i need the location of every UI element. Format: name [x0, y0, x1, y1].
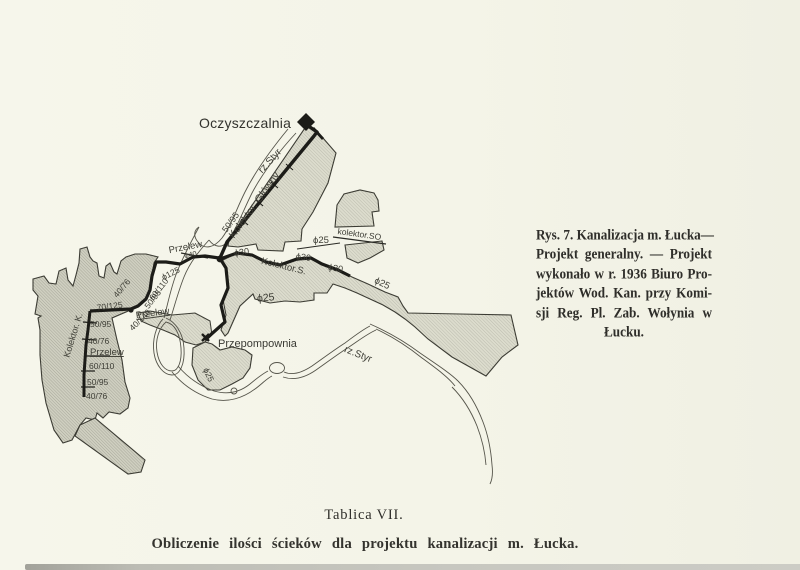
svg-text:40/76: 40/76 — [88, 336, 110, 346]
svg-text:ϕ40: ϕ40 — [184, 249, 198, 260]
svg-text:50/95: 50/95 — [90, 319, 112, 329]
svg-text:40/76: 40/76 — [86, 391, 108, 401]
svg-text:ϕ25: ϕ25 — [313, 235, 329, 246]
svg-text:rz.Styr: rz.Styr — [342, 344, 374, 365]
svg-text:60/110: 60/110 — [89, 361, 115, 371]
svg-text:kolektor.SO: kolektor.SO — [337, 226, 382, 242]
svg-text:Przelew: Przelew — [90, 347, 124, 358]
svg-text:ϕ25: ϕ25 — [256, 291, 275, 304]
svg-text:ϕ30: ϕ30 — [295, 251, 311, 263]
svg-text:Oczyszczalnia: Oczyszczalnia — [199, 115, 291, 131]
svg-text:50/95: 50/95 — [87, 377, 109, 387]
svg-text:Przepompownia: Przepompownia — [218, 338, 298, 350]
svg-text:ϕ30: ϕ30 — [233, 246, 249, 258]
